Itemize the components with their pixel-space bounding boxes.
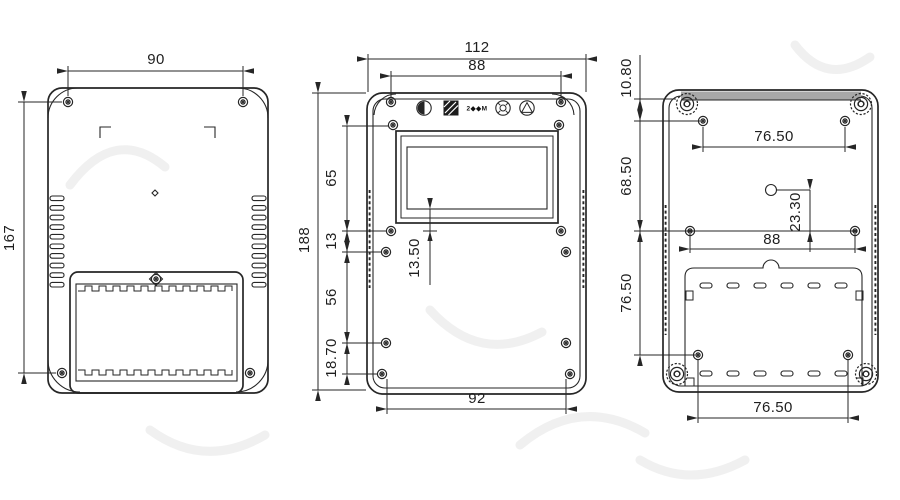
screw-icon: [388, 120, 397, 129]
corner-boss-icon: [856, 364, 877, 385]
corner-fillet: [48, 360, 80, 392]
dim-label-92: 92: [468, 390, 486, 407]
screw-icon: [57, 368, 66, 377]
screw-icon: [554, 120, 563, 129]
screw-icon: [556, 226, 565, 235]
triangle-mark-icon: [520, 101, 534, 115]
dim-label-10-80: 10.80: [618, 58, 635, 98]
vent-slots-right: [252, 196, 266, 287]
dim-front-chain: 65 13 56 18.70: [323, 126, 389, 378]
protection-class-icon: [444, 101, 459, 116]
terminal-teeth-bottom: [78, 370, 232, 375]
dim-front-bottom-span: 92: [387, 379, 566, 414]
screw-icon: [381, 338, 390, 347]
screw-icon: [238, 97, 247, 106]
double-insulation-icon: [417, 101, 431, 115]
meter-mark-text: 2◆◆M: [466, 106, 487, 113]
dim-front-screw-span: 88: [391, 57, 561, 98]
certification-marks: 2◆◆M: [417, 101, 534, 116]
terminal-opening: [685, 260, 863, 386]
dim-label-56: 56: [323, 288, 340, 306]
dim-label-13: 13: [323, 232, 340, 250]
dim-label-167: 167: [1, 225, 18, 251]
view-inner-back: 10.80 68.50 76.50 76.50 23.30 88 76.50: [618, 55, 878, 423]
hanger-hole: [766, 185, 777, 196]
screw-icon: [561, 338, 570, 347]
screw-icon: [377, 369, 386, 378]
screw-icon: [565, 369, 574, 378]
dim-label-76-50-top: 76.50: [754, 128, 794, 145]
dim-label-88: 88: [468, 57, 486, 74]
dim-innerback-mid-holes: 88: [690, 231, 855, 253]
dim-display-offset: 13.50: [406, 209, 437, 285]
dim-innerback-top-holes: 76.50: [703, 127, 845, 152]
dim-label-76-50-bottom: 76.50: [753, 399, 793, 416]
bracket-mark: [204, 127, 215, 138]
terminal-cover-inner: [76, 284, 237, 381]
certification-circle-icon: [496, 101, 510, 115]
screw-hole-icon: [840, 116, 849, 125]
drawing-canvas: 90 167: [0, 0, 900, 500]
view-back-cover: 90 167: [1, 51, 268, 393]
screw-icon: [381, 247, 390, 256]
corner-boss-icon: [667, 364, 688, 385]
dim-label-188: 188: [296, 227, 313, 253]
dim-back-width: 90: [68, 51, 243, 96]
view-front: 2◆◆M 112 88: [296, 39, 586, 414]
dim-label-90: 90: [147, 51, 165, 68]
enclosure-drawing: 90 167: [0, 0, 900, 500]
back-body-outline: [48, 88, 268, 393]
vent-slots-left: [50, 196, 64, 287]
dim-label-88-holes: 88: [763, 231, 781, 248]
top-band: [681, 92, 861, 101]
dim-label-18-70: 18.70: [323, 338, 340, 378]
dim-label-13-50: 13.50: [406, 238, 423, 278]
terminal-teeth-top: [78, 286, 232, 291]
dim-label-65: 65: [323, 169, 340, 187]
screw-icon: [63, 97, 72, 106]
lcd-window: [396, 131, 558, 223]
dim-label-23-30: 23.30: [787, 192, 804, 232]
dim-label-112: 112: [464, 39, 489, 56]
dim-hanger-offset: 23.30: [777, 190, 810, 252]
center-diamond: [152, 190, 158, 196]
dim-label-76-50-left: 76.50: [618, 273, 635, 313]
screw-icon: [561, 247, 570, 256]
dim-label-68-50: 68.50: [618, 156, 635, 196]
screw-icon: [386, 226, 395, 235]
screw-icon: [245, 368, 254, 377]
dim-back-height: 167: [1, 102, 62, 373]
corner-fillet: [552, 94, 574, 115]
screw-hole-icon: [843, 350, 852, 359]
corner-fillet: [236, 360, 268, 392]
bracket-mark: [100, 127, 111, 138]
